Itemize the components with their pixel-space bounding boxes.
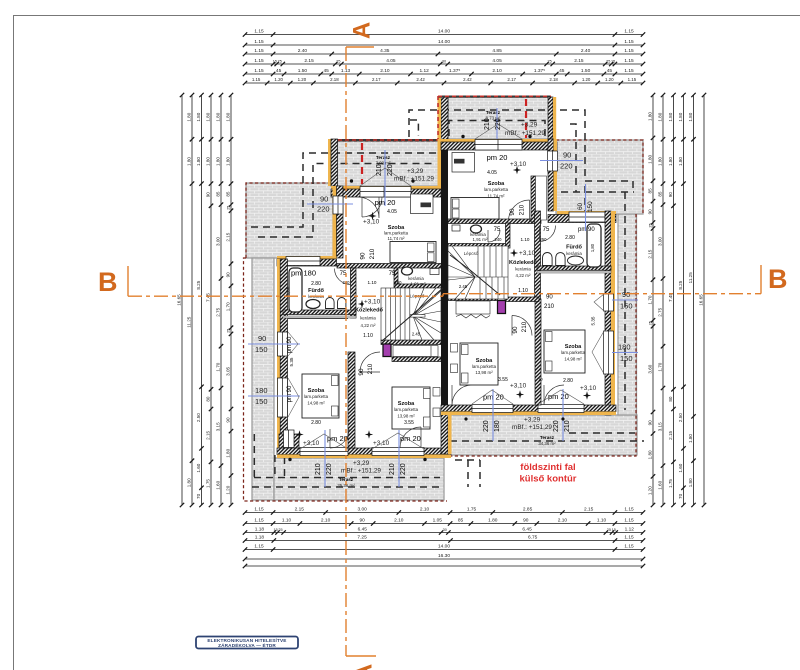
svg-text:1.80: 1.80 xyxy=(205,157,210,166)
svg-text:11,74 m²: 11,74 m² xyxy=(487,194,505,199)
svg-text:90: 90 xyxy=(563,151,571,160)
svg-text:2.40: 2.40 xyxy=(298,48,308,54)
svg-text:kerámia: kerámia xyxy=(566,251,582,256)
svg-text:1.15: 1.15 xyxy=(624,39,634,45)
svg-text:1.10: 1.10 xyxy=(521,237,530,242)
svg-text:240: 240 xyxy=(495,237,503,242)
svg-text:+3,10: +3,10 xyxy=(364,299,381,306)
svg-text:16.30: 16.30 xyxy=(438,553,450,559)
svg-text:16.65: 16.65 xyxy=(698,294,703,306)
svg-text:25: 25 xyxy=(606,60,610,64)
svg-text:1,91 m²: 1,91 m² xyxy=(411,282,426,287)
svg-text:1.80: 1.80 xyxy=(657,112,662,121)
svg-text:1.60: 1.60 xyxy=(215,480,220,489)
svg-text:90: 90 xyxy=(360,252,367,260)
svg-text:1.15: 1.15 xyxy=(624,58,634,64)
svg-text:+3,10: +3,10 xyxy=(510,383,527,390)
svg-text:1.60: 1.60 xyxy=(657,480,662,489)
svg-text:75: 75 xyxy=(494,227,501,233)
svg-text:3.60: 3.60 xyxy=(647,364,652,373)
svg-text:1.60: 1.60 xyxy=(678,463,683,472)
svg-text:4.05: 4.05 xyxy=(387,209,397,215)
svg-text:Terasz: Terasz xyxy=(540,435,555,440)
svg-text:8.25: 8.25 xyxy=(196,280,201,289)
svg-text:lam.parketta: lam.parketta xyxy=(561,350,586,355)
svg-text:45: 45 xyxy=(559,68,565,74)
svg-text:mBf.: +151,29: mBf.: +151,29 xyxy=(341,468,381,475)
svg-text:1.15: 1.15 xyxy=(624,68,634,74)
svg-text:1.70: 1.70 xyxy=(215,362,220,371)
svg-text:1.80: 1.80 xyxy=(647,112,652,121)
svg-text:2.85: 2.85 xyxy=(523,507,533,513)
svg-text:3.55: 3.55 xyxy=(404,420,414,426)
svg-text:1.15: 1.15 xyxy=(624,48,634,54)
svg-text:60: 60 xyxy=(577,202,584,210)
svg-text:1.10: 1.10 xyxy=(368,280,377,285)
svg-text:4.05: 4.05 xyxy=(492,58,502,64)
svg-text:90: 90 xyxy=(358,368,365,376)
svg-text:1.15: 1.15 xyxy=(254,68,264,74)
svg-text:25: 25 xyxy=(648,321,652,325)
svg-text:1.80: 1.80 xyxy=(488,518,498,524)
svg-text:pm 20: pm 20 xyxy=(327,434,348,443)
svg-text:1.15: 1.15 xyxy=(628,77,637,82)
svg-text:+3,29: +3,29 xyxy=(524,417,541,424)
svg-text:2.80: 2.80 xyxy=(563,378,573,384)
svg-text:1.60: 1.60 xyxy=(196,463,201,472)
svg-text:kerámia: kerámia xyxy=(515,267,531,272)
svg-text:45: 45 xyxy=(607,68,613,74)
svg-text:1.80: 1.80 xyxy=(647,154,652,163)
svg-text:1.15: 1.15 xyxy=(254,518,264,524)
svg-text:13,98 m²: 13,98 m² xyxy=(475,370,493,375)
svg-text:1.80: 1.80 xyxy=(688,434,693,443)
svg-text:180: 180 xyxy=(494,420,501,432)
svg-text:1.80: 1.80 xyxy=(205,112,210,121)
svg-text:1.15: 1.15 xyxy=(254,29,264,35)
svg-text:85: 85 xyxy=(458,518,464,524)
svg-text:250: 250 xyxy=(395,280,403,285)
svg-text:210: 210 xyxy=(315,463,322,475)
svg-text:1.80: 1.80 xyxy=(678,157,683,166)
svg-text:2.40: 2.40 xyxy=(581,48,591,54)
svg-text:45: 45 xyxy=(276,68,282,74)
svg-text:90: 90 xyxy=(523,518,529,524)
svg-text:2.42: 2.42 xyxy=(463,77,472,82)
svg-text:90: 90 xyxy=(258,334,266,343)
svg-text:90: 90 xyxy=(546,295,553,301)
svg-text:2.15: 2.15 xyxy=(574,58,584,64)
svg-text:külső kontúr: külső kontúr xyxy=(519,474,576,485)
svg-text:210: 210 xyxy=(484,118,491,130)
svg-text:1.12: 1.12 xyxy=(625,527,635,533)
svg-text:lam.parketta: lam.parketta xyxy=(472,364,497,369)
svg-text:6.45: 6.45 xyxy=(522,527,532,533)
svg-text:210: 210 xyxy=(389,463,396,475)
svg-text:1.15: 1.15 xyxy=(254,544,264,550)
svg-text:pm 20: pm 20 xyxy=(400,434,421,443)
svg-text:1.15: 1.15 xyxy=(252,77,261,82)
svg-text:250: 250 xyxy=(540,237,548,242)
svg-text:2.45: 2.45 xyxy=(459,284,468,289)
svg-text:80: 80 xyxy=(205,396,210,402)
svg-text:6.75: 6.75 xyxy=(528,535,538,541)
svg-text:1.12: 1.12 xyxy=(420,68,430,74)
svg-text:+3,10: +3,10 xyxy=(363,219,380,226)
svg-text:1.15: 1.15 xyxy=(624,535,634,541)
svg-text:90: 90 xyxy=(512,326,519,334)
svg-text:25: 25 xyxy=(278,528,282,532)
svg-text:10: 10 xyxy=(538,377,543,382)
svg-text:1.18: 1.18 xyxy=(255,535,265,541)
svg-text:150: 150 xyxy=(255,397,268,406)
svg-text:2.15: 2.15 xyxy=(205,430,210,439)
svg-text:2.10: 2.10 xyxy=(380,68,390,74)
svg-text:220: 220 xyxy=(317,205,330,214)
svg-text:1.80: 1.80 xyxy=(688,112,693,121)
svg-text:Lépcső: Lépcső xyxy=(464,251,479,256)
svg-text:2.50: 2.50 xyxy=(678,413,683,422)
svg-text:1.10: 1.10 xyxy=(363,333,373,339)
svg-text:70: 70 xyxy=(196,493,201,499)
svg-text:1.15: 1.15 xyxy=(254,507,264,513)
svg-text:210: 210 xyxy=(564,420,571,432)
svg-text:4,22 m²: 4,22 m² xyxy=(361,323,376,328)
svg-text:1,91 m²: 1,91 m² xyxy=(473,237,488,242)
svg-text:80: 80 xyxy=(668,396,673,402)
svg-text:25: 25 xyxy=(336,60,340,64)
svg-text:4.05: 4.05 xyxy=(487,170,497,176)
svg-text:2.10: 2.10 xyxy=(420,507,430,513)
svg-text:70: 70 xyxy=(678,493,683,499)
svg-text:90: 90 xyxy=(205,192,210,198)
svg-text:3.55: 3.55 xyxy=(498,377,508,383)
svg-text:15: 15 xyxy=(612,528,616,532)
svg-text:2.50: 2.50 xyxy=(196,413,201,422)
svg-text:1.80: 1.80 xyxy=(186,112,191,121)
svg-text:5.35: 5.35 xyxy=(289,357,294,366)
svg-text:15: 15 xyxy=(611,60,615,64)
svg-text:11,74 m²: 11,74 m² xyxy=(387,236,405,241)
svg-text:4.05: 4.05 xyxy=(386,58,396,64)
svg-text:220: 220 xyxy=(560,162,573,171)
svg-text:lam.parketta: lam.parketta xyxy=(484,187,509,192)
svg-text:6.45: 6.45 xyxy=(358,527,368,533)
svg-text:150: 150 xyxy=(255,345,268,354)
svg-text:3.00: 3.00 xyxy=(657,237,662,246)
svg-text:1.20: 1.20 xyxy=(298,77,307,82)
svg-text:14.00: 14.00 xyxy=(438,544,450,550)
svg-text:+3,29: +3,29 xyxy=(407,168,424,175)
svg-text:75: 75 xyxy=(543,227,550,233)
svg-text:1.15: 1.15 xyxy=(624,507,634,513)
svg-text:1.37⁵: 1.37⁵ xyxy=(534,68,545,74)
svg-text:2.15: 2.15 xyxy=(668,430,673,439)
svg-text:90: 90 xyxy=(320,195,328,204)
svg-text:15: 15 xyxy=(273,528,277,532)
svg-text:25: 25 xyxy=(226,206,230,210)
svg-text:210: 210 xyxy=(369,248,376,259)
svg-text:25: 25 xyxy=(607,528,611,532)
svg-text:1.20: 1.20 xyxy=(582,77,591,82)
svg-text:85: 85 xyxy=(657,191,662,197)
svg-text:25: 25 xyxy=(547,60,551,64)
svg-text:1.05: 1.05 xyxy=(433,518,443,524)
svg-text:A: A xyxy=(351,664,378,670)
svg-text:Terasz: Terasz xyxy=(376,155,391,160)
svg-text:180: 180 xyxy=(255,386,268,395)
svg-text:1.15: 1.15 xyxy=(254,58,264,64)
svg-text:220: 220 xyxy=(400,463,407,475)
svg-text:2.15: 2.15 xyxy=(304,58,314,64)
svg-text:1.15: 1.15 xyxy=(624,29,634,35)
svg-text:85: 85 xyxy=(225,191,230,197)
svg-text:2.42: 2.42 xyxy=(416,77,425,82)
svg-text:90: 90 xyxy=(647,420,652,426)
svg-text:2.15: 2.15 xyxy=(647,249,652,258)
svg-text:1.18: 1.18 xyxy=(255,527,265,533)
svg-text:1.80: 1.80 xyxy=(668,157,673,166)
svg-text:3.00: 3.00 xyxy=(358,507,368,513)
svg-text:4.35: 4.35 xyxy=(380,48,390,54)
svg-text:+3,29: +3,29 xyxy=(353,460,370,467)
svg-text:B: B xyxy=(98,267,118,297)
svg-text:1.37⁵: 1.37⁵ xyxy=(449,68,460,74)
svg-text:1.20: 1.20 xyxy=(605,77,614,82)
svg-text:2.45: 2.45 xyxy=(412,332,421,337)
svg-text:+3,10: +3,10 xyxy=(303,440,320,447)
svg-text:7.45: 7.45 xyxy=(205,293,210,302)
svg-text:1.20: 1.20 xyxy=(647,486,652,495)
svg-text:75: 75 xyxy=(389,271,396,277)
svg-text:1.20: 1.20 xyxy=(274,77,283,82)
svg-text:pm 180: pm 180 xyxy=(291,269,316,278)
svg-text:25: 25 xyxy=(648,223,652,227)
svg-text:2.17: 2.17 xyxy=(372,77,381,82)
svg-text:2.10: 2.10 xyxy=(558,518,568,524)
svg-text:210: 210 xyxy=(519,204,526,215)
svg-text:11.25: 11.25 xyxy=(688,272,693,284)
svg-text:2.10: 2.10 xyxy=(394,518,404,524)
svg-text:1.80: 1.80 xyxy=(225,448,230,457)
svg-text:1.75: 1.75 xyxy=(467,507,477,513)
svg-text:4.85: 4.85 xyxy=(492,48,502,54)
svg-text:30: 30 xyxy=(442,60,446,64)
svg-text:150: 150 xyxy=(620,354,633,363)
svg-text:1.10: 1.10 xyxy=(282,518,292,524)
svg-text:34,36 m²: 34,36 m² xyxy=(538,441,556,446)
svg-text:2.10: 2.10 xyxy=(492,68,502,74)
svg-text:1.80: 1.80 xyxy=(657,157,662,166)
svg-text:1.80: 1.80 xyxy=(688,478,693,487)
svg-text:5.35: 5.35 xyxy=(591,316,596,325)
svg-text:1,60: 1,60 xyxy=(286,286,291,295)
svg-text:lam.parketta: lam.parketta xyxy=(304,394,329,399)
svg-text:7.25: 7.25 xyxy=(357,535,367,541)
svg-text:1.50: 1.50 xyxy=(581,68,591,74)
svg-text:14,98 m²: 14,98 m² xyxy=(307,401,325,406)
svg-text:2.18: 2.18 xyxy=(549,77,558,82)
svg-text:220: 220 xyxy=(553,420,560,432)
svg-text:15: 15 xyxy=(273,60,277,64)
svg-text:Közlekedő: Közlekedő xyxy=(355,308,384,314)
svg-text:1.70: 1.70 xyxy=(647,295,652,304)
svg-text:2.10: 2.10 xyxy=(321,518,331,524)
svg-text:kerámia: kerámia xyxy=(360,316,376,321)
svg-text:+3,10: +3,10 xyxy=(519,250,536,257)
svg-text:mBf.: +151,29: mBf.: +151,29 xyxy=(505,130,545,137)
svg-text:ZÁRADÉKOLVA — ÉTDR: ZÁRADÉKOLVA — ÉTDR xyxy=(218,641,276,648)
svg-text:30: 30 xyxy=(443,528,447,532)
svg-text:90: 90 xyxy=(509,208,516,216)
svg-text:Fürdő: Fürdő xyxy=(566,245,582,251)
svg-text:lam.parketta: lam.parketta xyxy=(394,407,419,412)
svg-text:1.75: 1.75 xyxy=(668,479,673,488)
svg-text:14,98 m²: 14,98 m² xyxy=(564,357,582,362)
svg-text:90: 90 xyxy=(622,290,630,299)
svg-text:földszinti fal: földszinti fal xyxy=(520,462,575,473)
svg-text:1.80: 1.80 xyxy=(647,450,652,459)
svg-text:210: 210 xyxy=(521,321,528,332)
svg-text:+3,10: +3,10 xyxy=(510,161,527,168)
svg-text:210: 210 xyxy=(544,304,555,310)
svg-text:90: 90 xyxy=(225,417,230,423)
svg-text:90: 90 xyxy=(225,272,230,278)
svg-text:3.15: 3.15 xyxy=(215,422,220,431)
svg-text:3.05: 3.05 xyxy=(225,366,230,375)
svg-text:ELEKTRONIKUSAN HITELESÍTVE: ELEKTRONIKUSAN HITELESÍTVE xyxy=(207,636,286,643)
svg-text:1.80: 1.80 xyxy=(225,112,230,121)
svg-text:1.80: 1.80 xyxy=(215,157,220,166)
svg-text:1.80: 1.80 xyxy=(668,112,673,121)
svg-text:1.15: 1.15 xyxy=(254,48,264,54)
svg-text:2.80: 2.80 xyxy=(565,235,575,241)
svg-text:pm 20: pm 20 xyxy=(487,153,508,162)
svg-text:45: 45 xyxy=(324,68,330,74)
svg-text:220: 220 xyxy=(326,463,333,475)
svg-text:2.75: 2.75 xyxy=(657,307,662,316)
svg-text:90: 90 xyxy=(668,192,673,198)
svg-text:14.00: 14.00 xyxy=(438,29,450,35)
svg-text:220: 220 xyxy=(483,420,490,432)
svg-text:150: 150 xyxy=(587,201,594,212)
svg-text:1.80: 1.80 xyxy=(186,157,191,166)
svg-text:pm 90: pm 90 xyxy=(578,227,595,233)
svg-text:2.80: 2.80 xyxy=(311,281,321,287)
svg-text:1.80: 1.80 xyxy=(196,157,201,166)
svg-text:25: 25 xyxy=(278,60,282,64)
svg-text:90: 90 xyxy=(360,518,366,524)
svg-text:3.00: 3.00 xyxy=(215,237,220,246)
svg-text:pm 20: pm 20 xyxy=(548,392,569,401)
svg-text:1,80: 1,80 xyxy=(590,243,595,252)
svg-text:13,98 m²: 13,98 m² xyxy=(397,414,415,419)
svg-text:+3,29: +3,29 xyxy=(521,122,538,129)
svg-text:1.80: 1.80 xyxy=(225,157,230,166)
svg-text:180: 180 xyxy=(618,343,631,352)
svg-text:1.15: 1.15 xyxy=(624,518,634,524)
svg-text:mBf.: +151,29: mBf.: +151,29 xyxy=(512,424,552,431)
svg-text:B: B xyxy=(768,264,788,294)
svg-text:11.25: 11.25 xyxy=(186,316,191,328)
svg-text:A: A xyxy=(349,22,376,39)
svg-text:2.15: 2.15 xyxy=(295,507,305,513)
svg-text:25: 25 xyxy=(226,329,230,333)
svg-text:1.70: 1.70 xyxy=(657,362,662,371)
svg-text:pm 90: pm 90 xyxy=(287,385,293,402)
svg-text:2.15: 2.15 xyxy=(584,507,594,513)
svg-text:85: 85 xyxy=(647,188,652,194)
svg-text:1.20: 1.20 xyxy=(225,485,230,494)
svg-text:Közlekedő: Közlekedő xyxy=(509,260,538,266)
svg-text:90: 90 xyxy=(647,209,652,215)
svg-text:1.80: 1.80 xyxy=(678,112,683,121)
svg-text:8.25: 8.25 xyxy=(678,280,683,289)
svg-text:1.75: 1.75 xyxy=(205,479,210,488)
svg-text:1.15: 1.15 xyxy=(254,39,264,45)
svg-text:1.80: 1.80 xyxy=(186,478,191,487)
svg-text:1.80: 1.80 xyxy=(215,112,220,121)
svg-text:150: 150 xyxy=(620,302,633,311)
svg-text:1.10: 1.10 xyxy=(597,518,607,524)
svg-text:lam.parketta: lam.parketta xyxy=(384,231,409,236)
svg-text:kerámia: kerámia xyxy=(408,276,424,281)
svg-text:2.18: 2.18 xyxy=(330,77,339,82)
svg-text:2.15: 2.15 xyxy=(225,232,230,241)
svg-text:85: 85 xyxy=(215,191,220,197)
svg-text:2.75: 2.75 xyxy=(215,307,220,316)
svg-text:3.15: 3.15 xyxy=(657,422,662,431)
svg-text:1.80: 1.80 xyxy=(196,112,201,121)
svg-text:2.17: 2.17 xyxy=(507,77,516,82)
svg-text:1.15: 1.15 xyxy=(624,544,634,550)
svg-text:14.00: 14.00 xyxy=(438,39,450,45)
svg-text:4,22 m²: 4,22 m² xyxy=(516,273,531,278)
svg-text:1.70: 1.70 xyxy=(225,302,230,311)
svg-text:210: 210 xyxy=(367,363,374,374)
svg-text:2.80: 2.80 xyxy=(311,420,321,426)
svg-text:+3,10: +3,10 xyxy=(580,385,597,392)
svg-text:Terasz: Terasz xyxy=(486,110,501,115)
svg-text:1.50: 1.50 xyxy=(298,68,308,74)
